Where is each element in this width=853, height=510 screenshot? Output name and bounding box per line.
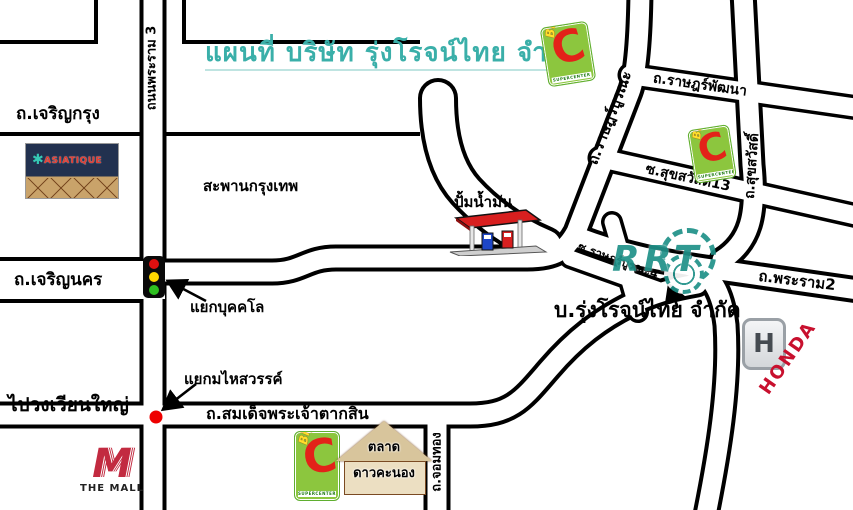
- mahaisawan-junction-dot: [150, 411, 163, 424]
- road-label-charoen-nakhon: ถ.เจริญนคร: [14, 272, 102, 289]
- the-mall-logo: M THE MALL: [80, 444, 144, 500]
- road-label-taksin: ถ.สมเด็จพระเจ้าตากสิน: [206, 406, 369, 422]
- asiatique-star-icon: ✱: [32, 152, 44, 168]
- traffic-light-red: [149, 259, 159, 269]
- daokhanong-market: ตลาด ดาวคะนอง: [336, 421, 432, 495]
- place-label-wongwian-yai: ไปวงเวียนใหญ่: [8, 396, 129, 415]
- page-title: แผนที่ บริษัท รุ่งโรจน์ไทย จำกัด: [205, 40, 582, 71]
- place-label-krungthep-bridge: สะพานกรุงเทพ: [203, 179, 298, 194]
- the-mall-m-icon: M: [80, 444, 144, 484]
- traffic-light-yellow: [149, 272, 159, 282]
- gas-station-icon: [448, 206, 548, 256]
- asiatique-roofs: [26, 178, 118, 198]
- map-canvas: แผนที่ บริษัท รุ่งโรจน์ไทย จำกัด ถนนพระร…: [0, 0, 853, 510]
- road-label-charoen-krung: ถ.เจริญกรุง: [16, 106, 100, 123]
- market-label-line1: ตลาด: [368, 441, 400, 454]
- traffic-light-green: [149, 285, 159, 295]
- bigc-logo-top: C Big SUPERCENTER: [540, 21, 597, 88]
- traffic-light: [143, 256, 165, 298]
- bigc-logo-daokhanong: C Big SUPERCENTER: [294, 431, 340, 501]
- asiatique-sign: ASIATIQUE: [44, 156, 102, 166]
- junction-label-mahaisawan: แยกมไหสวรรค์: [184, 372, 283, 387]
- place-label-company: บ.รุ่งโรจน์ไทย จำกัด: [554, 300, 741, 321]
- road-label-chom-thong: ถ.จอมทอง: [431, 432, 444, 492]
- bigc-logo-suksawat: C Big SUPERCENTER: [687, 124, 737, 184]
- junction-label-bukkhalo: แยกบุคคโล: [190, 300, 264, 315]
- road-label-rama3: ถนนพระราม 3: [146, 26, 159, 111]
- asiatique-photo: ✱ ASIATIQUE: [25, 143, 119, 199]
- rrt-letters: RRT: [612, 242, 702, 278]
- gas-station: ปั้มน้ำมัน: [448, 190, 548, 256]
- the-mall-label: THE MALL: [80, 484, 144, 494]
- rrt-company-logo: RRT: [612, 228, 718, 294]
- market-label-line2: ดาวคะนอง: [353, 467, 415, 480]
